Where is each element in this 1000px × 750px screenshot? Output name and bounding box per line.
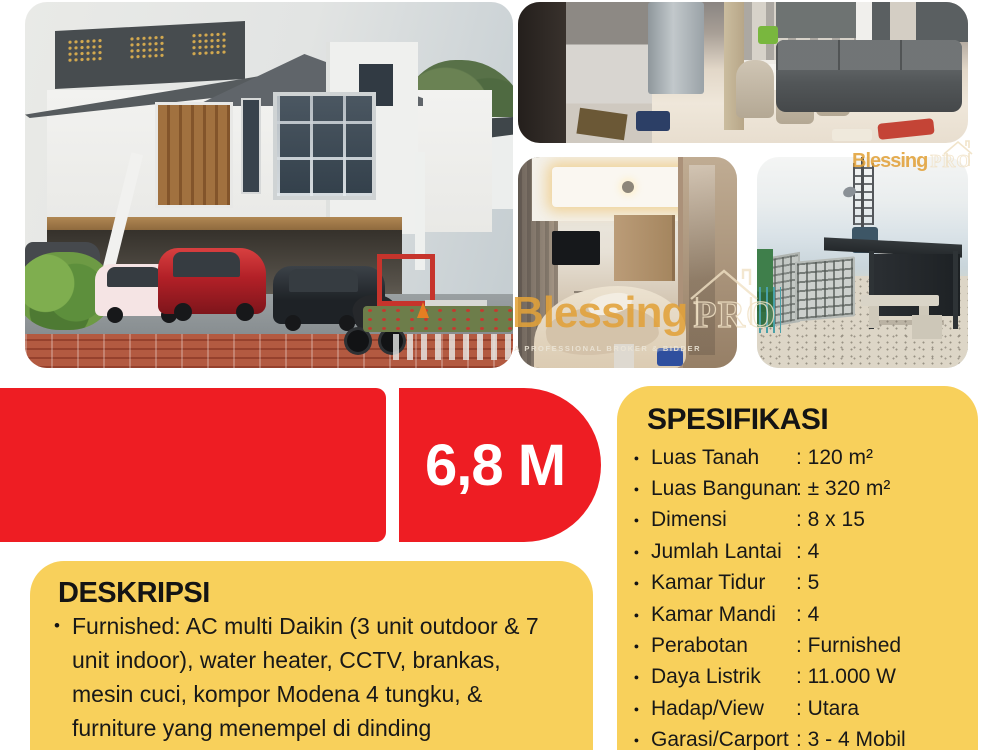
price-text: 6,8 M <box>425 432 565 499</box>
description-heading: DESKRIPSI <box>58 577 210 610</box>
specification-heading: SPESIFIKASI <box>647 403 828 437</box>
photo-house-exterior <box>25 2 513 368</box>
spec-label: Hadap/View <box>651 697 796 721</box>
spec-label: Daya Listrik <box>651 665 796 689</box>
spec-label: Garasi/Carport <box>651 728 796 750</box>
spec-row: ●Dimensi: 8 x 15 <box>630 505 968 536</box>
sofa <box>776 40 962 112</box>
red-rack <box>377 254 435 306</box>
bullet-icon: ● <box>630 672 643 682</box>
floor-clutter <box>832 129 872 141</box>
bullet-icon: • <box>54 745 72 750</box>
concrete-bench <box>861 295 939 306</box>
floor-clutter <box>877 118 934 140</box>
wall-tv <box>552 231 600 265</box>
spec-row: ●Jumlah Lantai: 4 <box>630 536 968 567</box>
refrigerator <box>648 2 704 94</box>
description-bullet: •Akses langsung ke Tol Karang Tengah <box>54 745 565 750</box>
spec-row: ●Luas Tanah: 120 m² <box>630 442 968 473</box>
large-window <box>273 92 376 200</box>
car-red-suv <box>158 248 266 314</box>
slim-window <box>241 98 261 194</box>
bullet-icon: ● <box>630 515 643 525</box>
spec-label: Luas Bangunan <box>651 477 796 501</box>
spec-row: ●Daya Listrik: 11.000 W <box>630 662 968 693</box>
pergola-post <box>953 251 958 329</box>
spec-label: Dimensi <box>651 508 796 532</box>
flower-hedge <box>363 306 513 332</box>
spec-value: : 120 m² <box>796 446 873 470</box>
dining-chair <box>736 60 774 118</box>
breeze-block-wall <box>795 256 855 321</box>
bench-leg <box>869 306 879 328</box>
bullet-icon: ● <box>630 578 643 588</box>
gray-wall <box>776 2 856 38</box>
blue-stool <box>657 348 683 366</box>
teal-railing <box>759 287 781 333</box>
description-panel: DESKRIPSI •Furnished: AC multi Daikin (3… <box>30 561 593 750</box>
bullet-icon: ● <box>630 704 643 714</box>
spec-row: ●Kamar Tidur: 5 <box>630 568 968 599</box>
bullet-icon: ● <box>630 641 643 651</box>
green-bag <box>758 26 778 44</box>
carport-beam <box>47 217 402 230</box>
spec-row: ●Hadap/View: Utara <box>630 693 968 724</box>
description-text: Akses langsung ke Tol Karang Tengah <box>72 745 565 750</box>
vent-grille <box>129 34 165 60</box>
title-banner: RUMAH RIVIERA METLAND PURI Cipondoh - Ta… <box>0 388 386 542</box>
wardrobe <box>614 215 675 281</box>
description-list: •Furnished: AC multi Daikin (3 unit outd… <box>54 609 565 750</box>
white-fence <box>393 334 513 360</box>
bullet-icon: ● <box>630 735 643 745</box>
spec-value: : 11.000 W <box>796 665 896 689</box>
specification-panel: SPESIFIKASI ●Luas Tanah: 120 m²●Luas Ban… <box>617 386 978 750</box>
spec-label: Perabotan <box>651 634 796 658</box>
spec-value: : 5 <box>796 571 819 595</box>
spec-row: ●Luas Bangunan: ± 320 m² <box>630 473 968 504</box>
house-facade-band <box>55 21 245 89</box>
spec-value: : Furnished <box>796 634 901 658</box>
concrete-block <box>912 315 942 339</box>
spec-row: ●Kamar Mandi: 4 <box>630 599 968 630</box>
description-bullet: •Furnished: AC multi Daikin (3 unit outd… <box>54 609 565 745</box>
spec-label: Kamar Mandi <box>651 603 796 627</box>
vent-grille <box>191 31 227 57</box>
photo-rooftop-terrace <box>757 157 968 368</box>
white-strut <box>415 152 425 270</box>
price-badge: 6,8 M <box>399 388 601 542</box>
bullet-icon: • <box>54 609 72 745</box>
spec-value: : 4 <box>796 540 819 564</box>
spec-row: ●Garasi/Carport: 3 - 4 Mobil <box>630 725 968 750</box>
spec-row: ●Perabotan: Furnished <box>630 630 968 661</box>
dark-doorway <box>518 2 570 143</box>
bullet-icon: ● <box>630 453 643 463</box>
photo-living-kitchen <box>518 2 968 143</box>
bullet-icon: ● <box>630 610 643 620</box>
white-stool <box>614 344 634 368</box>
spec-label: Luas Tanah <box>651 446 796 470</box>
house-wall <box>47 90 492 232</box>
blue-item <box>636 111 670 131</box>
bullet-icon: ● <box>630 484 643 494</box>
wood-slat-panel <box>155 102 233 208</box>
vent-grille <box>67 37 103 63</box>
spec-value: : 4 <box>796 603 819 627</box>
property-flyer: Blessing PRO Blessing PRO A PROFESSIONAL… <box>0 0 1000 750</box>
spec-value: : 3 - 4 Mobil <box>796 728 906 750</box>
spec-list: ●Luas Tanah: 120 m²●Luas Bangunan: ± 320… <box>630 442 968 750</box>
spec-label: Kamar Tidur <box>651 571 796 595</box>
mirror-wardrobe <box>678 157 737 368</box>
bullet-icon: ● <box>630 547 643 557</box>
spec-value: : 8 x 15 <box>796 508 865 532</box>
photo-bedroom <box>518 157 737 368</box>
spec-value: : ± 320 m² <box>796 477 890 501</box>
antenna-mast <box>861 157 864 237</box>
description-text: Furnished: AC multi Daikin (3 unit outdo… <box>72 609 565 745</box>
spec-label: Jumlah Lantai <box>651 540 796 564</box>
ceiling-lamp <box>622 181 634 193</box>
spec-value: : Utara <box>796 697 859 721</box>
pergola-interior <box>872 254 960 316</box>
